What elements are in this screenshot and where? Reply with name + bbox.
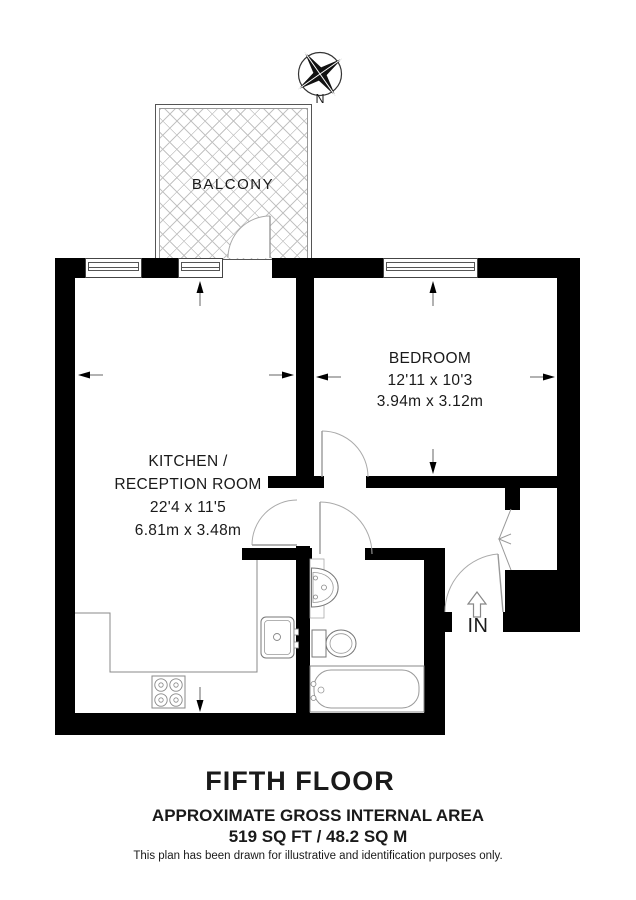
floorplan-page: BALCONY bbox=[0, 0, 636, 900]
compass-north-label: N bbox=[312, 92, 328, 106]
wall-bedroom-bottom bbox=[366, 476, 557, 488]
bedroom-label-block: BEDROOM 12'11 x 10'3 3.94m x 3.12m bbox=[330, 348, 530, 413]
kitchen-sink bbox=[261, 617, 299, 658]
wall-closet-top-stub bbox=[505, 488, 520, 510]
bedroom-dim-imperial: 12'11 x 10'3 bbox=[330, 370, 530, 392]
bedroom-dim-metric: 3.94m x 3.12m bbox=[330, 391, 530, 413]
dim-arrow-bedroom-down bbox=[430, 449, 437, 474]
window-glazing bbox=[88, 262, 139, 271]
bathroom-door bbox=[320, 502, 372, 554]
entrance-label: IN bbox=[460, 615, 496, 638]
wall-divider-upper bbox=[296, 278, 314, 476]
wash-basin bbox=[310, 559, 338, 618]
wall-entry-left bbox=[445, 612, 452, 632]
window-kitchen-2 bbox=[178, 258, 223, 278]
bathtub bbox=[310, 666, 424, 712]
balcony-label: BALCONY bbox=[160, 176, 306, 193]
wall-left bbox=[55, 258, 75, 735]
wall-bathroom-left bbox=[296, 546, 310, 735]
dim-arrow-bedroom-up bbox=[430, 281, 437, 306]
dim-arrow-kitchen-right bbox=[269, 372, 294, 379]
wall-bathroom-right bbox=[424, 548, 445, 735]
closet-bifold-door bbox=[499, 509, 511, 570]
bedroom-door bbox=[322, 431, 368, 477]
wall-entry-right bbox=[503, 612, 580, 632]
area-value: 519 SQ FT / 48.2 SQ M bbox=[0, 827, 636, 847]
wall-kitchen-door-stub bbox=[242, 548, 312, 560]
kitchen-counter bbox=[75, 560, 257, 672]
window-kitchen-1 bbox=[85, 258, 142, 278]
kitchen-label-block: KITCHEN / RECEPTION ROOM 22'4 x 11'5 6.8… bbox=[88, 450, 288, 542]
toilet bbox=[312, 630, 356, 657]
wall-top-corner bbox=[55, 258, 85, 278]
dim-arrow-bedroom-right bbox=[530, 374, 555, 381]
compass-icon bbox=[299, 53, 342, 96]
stove-hob bbox=[152, 676, 185, 708]
kitchen-label-line2: RECEPTION ROOM bbox=[88, 473, 288, 496]
dim-arrow-kitchen-up bbox=[197, 281, 204, 306]
kitchen-dim-imperial: 22'4 x 11'5 bbox=[88, 496, 288, 519]
kitchen-label-line1: KITCHEN / bbox=[88, 450, 288, 473]
entry-door bbox=[445, 554, 503, 612]
disclaimer: This plan has been drawn for illustrativ… bbox=[0, 850, 636, 862]
wall-closet-bottom bbox=[505, 570, 557, 612]
wall-bottom bbox=[55, 713, 445, 735]
area-heading: APPROXIMATE GROSS INTERNAL AREA bbox=[0, 806, 636, 826]
wall-top-mid bbox=[272, 258, 383, 278]
wall-right bbox=[557, 258, 580, 632]
window-glazing bbox=[181, 262, 220, 271]
dim-arrow-kitchen-left bbox=[78, 372, 103, 379]
bedroom-label: BEDROOM bbox=[330, 348, 530, 370]
kitchen-dim-metric: 6.81m x 3.48m bbox=[88, 519, 288, 542]
window-bedroom bbox=[383, 258, 478, 278]
window-glazing bbox=[386, 262, 475, 271]
floor-title: FIFTH FLOOR bbox=[0, 766, 600, 797]
wall-top-pier bbox=[142, 258, 178, 278]
dim-arrow-kitchen-down bbox=[197, 687, 204, 712]
entry-arrow-icon bbox=[468, 592, 486, 617]
